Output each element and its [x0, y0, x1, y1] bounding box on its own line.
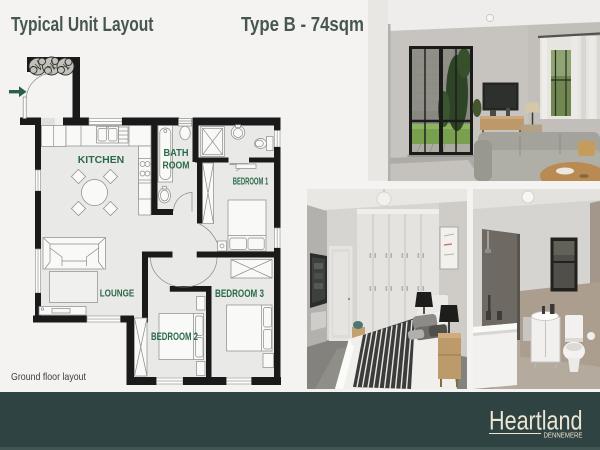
svg-text:Type B - 74sqm: Type B - 74sqm [241, 14, 364, 36]
svg-text:KITCHEN: KITCHEN [78, 155, 125, 166]
svg-text:BATH: BATH [164, 147, 189, 159]
svg-text:ROOM: ROOM [163, 160, 190, 172]
svg-text:Ground floor layout: Ground floor layout [11, 371, 86, 383]
svg-text:Heartland: Heartland [489, 406, 583, 436]
svg-text:LOUNGE: LOUNGE [100, 289, 135, 300]
svg-text:DENNEMERE: DENNEMERE [544, 433, 583, 440]
svg-text:BEDROOM 2: BEDROOM 2 [151, 331, 198, 343]
svg-text:Typical Unit Layout: Typical Unit Layout [11, 14, 154, 36]
svg-text:BEDROOM 3: BEDROOM 3 [215, 288, 264, 300]
svg-text:BEDROOM 1: BEDROOM 1 [233, 176, 269, 188]
